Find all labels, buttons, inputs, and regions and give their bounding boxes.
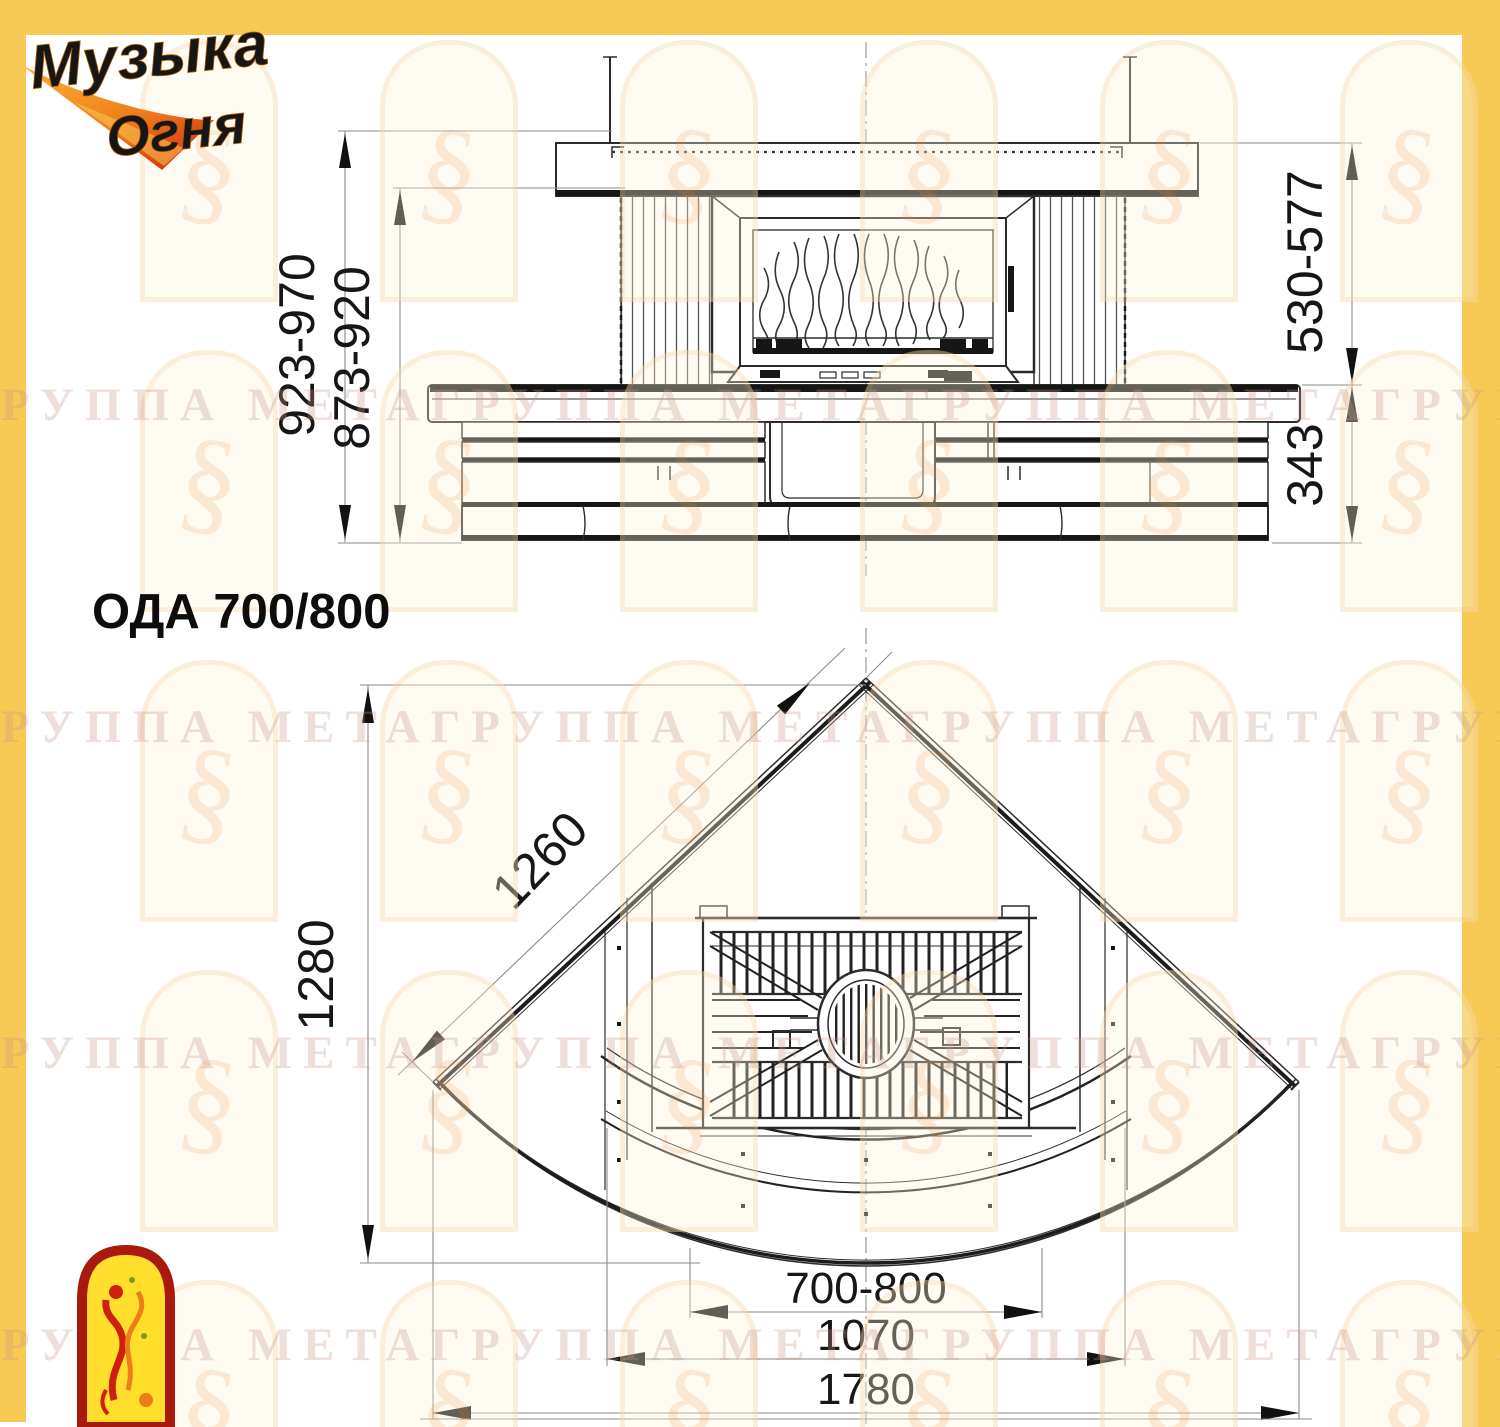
frame-band-right	[1462, 0, 1500, 1427]
dim-hearth-width: 1070	[817, 1311, 915, 1360]
dim-firebox-height: 530-577	[1277, 170, 1333, 354]
dim-depth: 1280	[288, 919, 344, 1030]
firebox	[712, 196, 1034, 382]
watermark-arch: §	[140, 350, 278, 612]
arch-emblem	[76, 1240, 176, 1427]
dim-firebox-width: 700-800	[785, 1264, 946, 1313]
chimney	[603, 57, 1137, 143]
insert-plan	[656, 906, 1076, 1136]
watermark-arch: §	[140, 660, 278, 922]
watermark-arch: §	[140, 970, 278, 1232]
dim-overall-height: 923-970	[269, 253, 325, 437]
bench-shelf	[428, 385, 1300, 422]
watermark-arch-figure: §	[168, 719, 250, 863]
plan-view-drawing: 1280 1260 700-800 1070 1780	[300, 620, 1460, 1427]
dim-side: 1260	[481, 801, 599, 920]
logo-word-2: Огня	[103, 92, 249, 169]
dim-base-height: 343	[1277, 423, 1333, 506]
page: 923-970 873-920 530-577 343	[0, 0, 1500, 1427]
watermark-arch-figure: §	[168, 409, 250, 553]
brand-logo: Музыка Огня	[14, 2, 264, 182]
logo-word-1: Музыка	[26, 9, 271, 103]
frame-band-left	[0, 0, 26, 1422]
watermark-arch-figure: §	[168, 1339, 250, 1427]
front-elevation-drawing: 923-970 873-920 530-577 343	[280, 30, 1460, 580]
model-title: ОДА 700/800	[92, 584, 391, 640]
dim-mantel-height: 873-920	[324, 266, 380, 450]
watermark-arch-figure: §	[168, 1029, 250, 1173]
dim-overall-width: 1780	[817, 1365, 915, 1414]
hood	[556, 143, 1198, 196]
base	[462, 422, 1268, 540]
door-handle	[1008, 266, 1014, 312]
